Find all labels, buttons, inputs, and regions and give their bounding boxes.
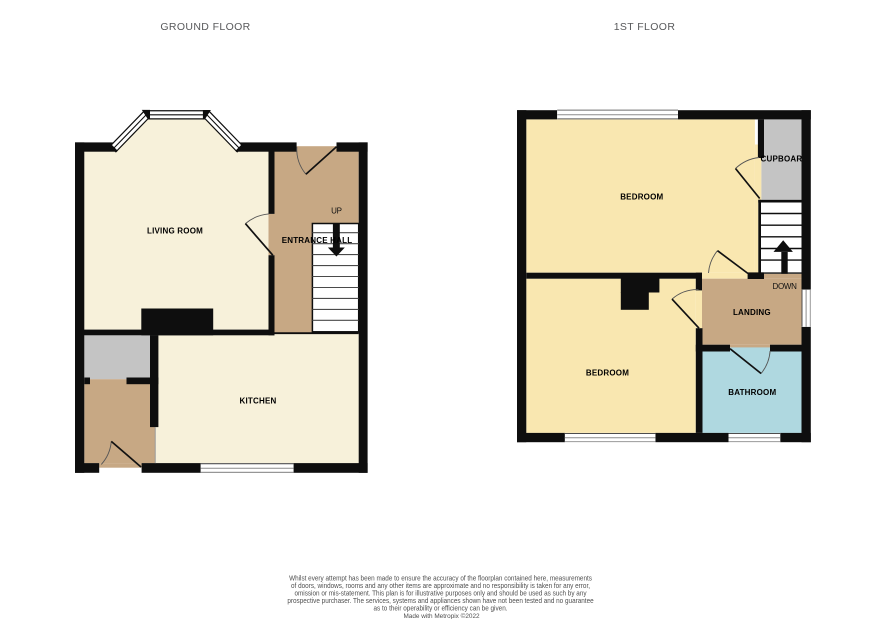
svg-text:Made with Metropix ©2022: Made with Metropix ©2022	[403, 612, 480, 619]
svg-text:omission or mis-statement. Thi: omission or mis-statement. This plan is …	[294, 590, 587, 597]
svg-text:KITCHEN: KITCHEN	[240, 397, 277, 406]
svg-text:ENTRANCE HALL: ENTRANCE HALL	[282, 236, 353, 245]
svg-text:BEDROOM: BEDROOM	[586, 368, 629, 377]
svg-text:LANDING: LANDING	[733, 308, 771, 317]
svg-text:UP: UP	[331, 207, 342, 216]
svg-text:CUPBOARD: CUPBOARD	[761, 155, 809, 164]
svg-text:1ST FLOOR: 1ST FLOOR	[614, 21, 676, 33]
svg-text:BEDROOM: BEDROOM	[620, 192, 663, 201]
svg-text:Whilst every attempt has been: Whilst every attempt has been made to en…	[289, 575, 592, 582]
svg-text:LIVING ROOM: LIVING ROOM	[147, 227, 203, 236]
svg-text:as to their operability or eff: as to their operability or efficiency ca…	[374, 605, 508, 612]
svg-text:BATHROOM: BATHROOM	[728, 388, 776, 397]
svg-text:DOWN: DOWN	[773, 282, 798, 291]
svg-text:GROUND FLOOR: GROUND FLOOR	[160, 21, 250, 33]
svg-text:of doors, windows, rooms and a: of doors, windows, rooms and any other i…	[291, 583, 590, 590]
